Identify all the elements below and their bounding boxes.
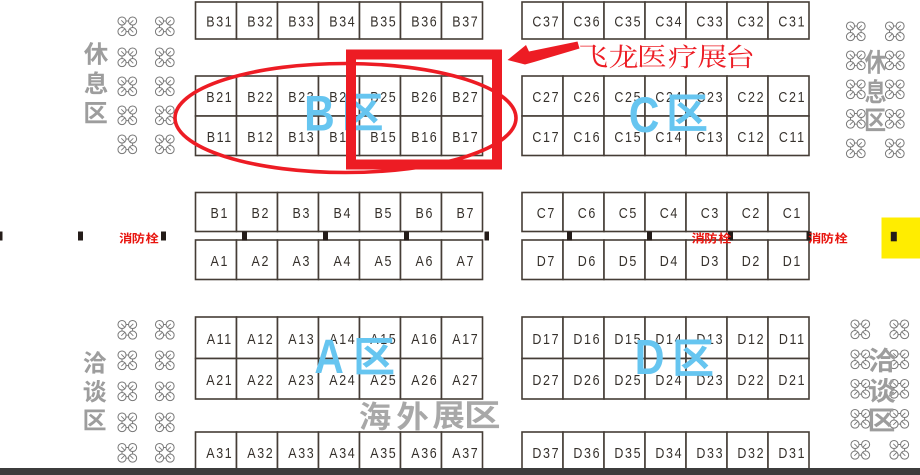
svg-text:D13: D13 [696,330,724,347]
svg-text:C16: C16 [573,128,601,145]
svg-text:A36: A36 [411,444,438,461]
svg-text:D33: D33 [696,444,724,461]
svg-text:D26: D26 [573,371,601,388]
svg-text:C2: C2 [742,204,761,221]
svg-text:A12: A12 [247,330,274,347]
svg-text:B26: B26 [411,88,438,105]
svg-text:C12: C12 [737,128,765,145]
svg-text:B6: B6 [416,204,435,221]
svg-text:C37: C37 [532,12,560,29]
svg-text:A35: A35 [370,444,397,461]
svg-text:B2: B2 [252,204,271,221]
svg-text:D37: D37 [532,444,560,461]
svg-text:A23: A23 [288,371,315,388]
svg-text:B: B [304,85,335,141]
svg-text:D2: D2 [742,252,761,269]
svg-text:D21: D21 [778,371,806,388]
svg-text:A3: A3 [293,252,312,269]
svg-text:A37: A37 [452,444,479,461]
svg-text:B37: B37 [452,12,479,29]
svg-text:B3: B3 [293,204,312,221]
svg-text:C5: C5 [619,204,638,221]
svg-text:B7: B7 [457,204,476,221]
svg-text:C32: C32 [737,12,765,29]
svg-text:A34: A34 [329,444,356,461]
svg-text:B32: B32 [247,12,274,29]
svg-text:D6: D6 [578,252,597,269]
svg-text:D7: D7 [537,252,556,269]
svg-text:C22: C22 [737,88,765,105]
svg-text:D: D [635,330,665,385]
svg-text:B36: B36 [411,12,438,29]
svg-text:D5: D5 [619,252,638,269]
svg-text:A7: A7 [457,252,476,269]
svg-text:D31: D31 [778,444,806,461]
svg-text:D12: D12 [737,330,765,347]
svg-text:A2: A2 [252,252,271,269]
svg-text:B31: B31 [206,12,233,29]
svg-text:C3: C3 [701,204,720,221]
svg-text:D4: D4 [660,252,679,269]
svg-text:B35: B35 [370,12,397,29]
svg-text:A33: A33 [288,444,315,461]
svg-text:B34: B34 [329,12,356,29]
svg-text:D35: D35 [614,444,642,461]
svg-text:B27: B27 [452,88,479,105]
svg-text:C11: C11 [779,128,806,145]
svg-text:C27: C27 [532,88,560,105]
svg-text:C35: C35 [614,12,642,29]
svg-text:A13: A13 [288,330,315,347]
svg-text:B5: B5 [375,204,394,221]
svg-text:B21: B21 [206,88,233,105]
svg-text:D11: D11 [779,330,806,347]
svg-text:C4: C4 [660,204,679,221]
svg-text:A6: A6 [416,252,435,269]
svg-text:D3: D3 [701,252,720,269]
svg-text:D34: D34 [655,444,683,461]
svg-text:C26: C26 [573,88,601,105]
svg-text:A: A [314,330,343,384]
svg-text:D1: D1 [783,252,802,269]
svg-text:C17: C17 [532,128,560,145]
svg-text:B4: B4 [334,204,353,221]
svg-text:B16: B16 [411,128,438,145]
svg-text:A27: A27 [452,371,479,388]
svg-text:B22: B22 [247,88,274,105]
svg-text:C1: C1 [783,204,802,221]
svg-text:C: C [629,87,660,143]
svg-text:A17: A17 [452,330,479,347]
svg-text:A32: A32 [247,444,274,461]
svg-text:B11: B11 [207,128,233,145]
svg-text:D36: D36 [573,444,601,461]
svg-text:A4: A4 [334,252,353,269]
svg-text:B33: B33 [288,12,315,29]
svg-text:C31: C31 [778,12,806,29]
svg-text:A21: A21 [206,371,233,388]
svg-text:A22: A22 [247,371,274,388]
svg-text:A11: A11 [207,330,233,347]
svg-text:D16: D16 [573,330,601,347]
svg-text:B1: B1 [211,204,230,221]
svg-text:A16: A16 [411,330,438,347]
svg-text:C36: C36 [573,12,601,29]
svg-text:D27: D27 [532,371,560,388]
svg-text:C33: C33 [696,12,724,29]
svg-text:C6: C6 [578,204,597,221]
svg-text:D22: D22 [737,371,765,388]
svg-text:A31: A31 [206,444,233,461]
svg-text:C34: C34 [655,12,683,29]
svg-text:C21: C21 [778,88,806,105]
svg-text:B17: B17 [452,128,479,145]
svg-text:A5: A5 [375,252,394,269]
svg-text:C7: C7 [537,204,556,221]
svg-text:D17: D17 [532,330,560,347]
svg-text:A26: A26 [411,371,438,388]
svg-text:B12: B12 [247,128,274,145]
svg-text:D32: D32 [737,444,765,461]
svg-text:A1: A1 [211,252,230,269]
